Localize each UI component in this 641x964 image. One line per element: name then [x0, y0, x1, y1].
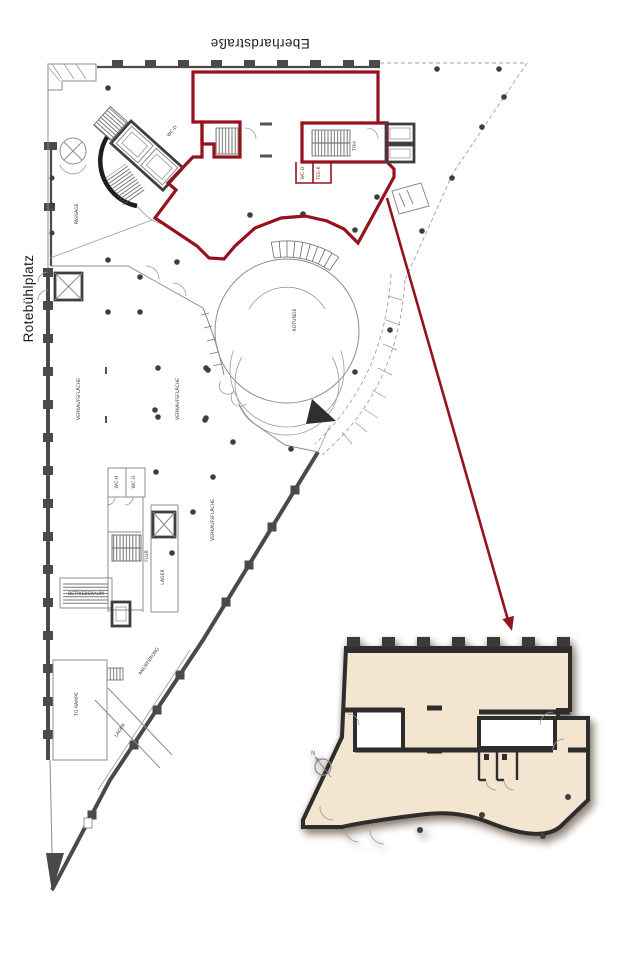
label-verkaufsflaeche-3: VERKAUFSFLÄCHE: [209, 499, 216, 541]
label-verkaufsflaeche-1: VERKAUFSFLÄCHE: [75, 378, 82, 420]
left-wall: [43, 268, 64, 892]
label-passage: PASSAGE: [74, 203, 80, 224]
stair-cores: [216, 124, 429, 214]
enlarged-right-core-notch: [479, 718, 555, 748]
label-wc-d-2: WC-D: [131, 475, 137, 488]
floorplan-page: Eberhardstraße Rotebühlplatz: [0, 0, 641, 964]
grid-ticks: [106, 124, 272, 423]
zoom-arrow: [387, 198, 514, 631]
label-tg-rampe: TG RAMPE: [74, 692, 80, 717]
label-anlieferung: ANLIEFERUNG: [137, 646, 161, 676]
label-north: N: [311, 750, 316, 757]
rotunda: [215, 241, 359, 452]
label-trh: TRH: [352, 141, 358, 151]
label-rotunde: ROTUNDE: [292, 308, 298, 331]
label-flur: FLUR: [144, 549, 150, 561]
top-left-canopy: [44, 64, 96, 268]
label-tee-k: TEE-K: [316, 165, 322, 180]
floor-plan-svg: PASSAGE VERKAUFSFLÄCHE VERKAUFSFLÄCHE VE…: [0, 0, 641, 964]
label-wc-d: WC-D: [300, 166, 306, 179]
street-wall-windows: [97, 60, 380, 68]
diagonal-elevator-core: [92, 104, 183, 224]
enlarged-unit-plan: N: [303, 637, 588, 844]
service-core-cluster: [53, 468, 190, 790]
plan-room-labels: PASSAGE VERKAUFSFLÄCHE VERKAUFSFLÄCHE VE…: [68, 124, 358, 738]
label-lager-1: LAGER: [160, 569, 166, 585]
unit-highlight-outline: [155, 72, 394, 259]
label-lager-2: LAGER: [113, 722, 127, 739]
enlarged-left-core-notch: [355, 710, 403, 750]
shaft-circle-icon: [60, 138, 86, 174]
label-wc-d-3: WC-D: [166, 124, 179, 138]
label-betriebsraum: BETRIEBSRAUM: [68, 591, 104, 597]
label-verkaufsflaeche-2: VERKAUFSFLÄCHE: [174, 378, 181, 420]
diagonal-wall: [52, 452, 318, 890]
label-wc-h-2: WC-H: [114, 476, 120, 489]
